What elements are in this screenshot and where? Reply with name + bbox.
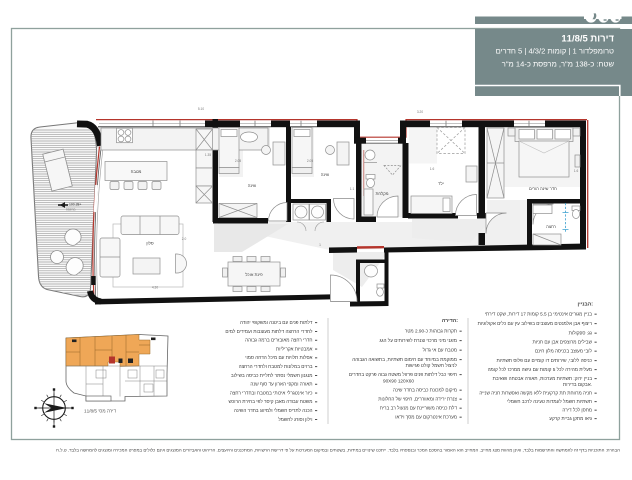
svg-text:מקלחת: מקלחת [375, 191, 388, 196]
svg-text:אמבטיות אקריליות: אמבטיות אקריליות [276, 346, 313, 351]
svg-text:לחדרי הרחצה דלתות מעוצבות ועמי: לחדרי הרחצה דלתות מעוצבות ועמידים למים [225, 329, 313, 334]
svg-text:בניין מגורים אינטימי בן 5.5 קו: בניין מגורים אינטימי בן 5.5 קומות 17 דיר… [485, 312, 592, 317]
svg-text:הכנה לתריס חשמלי ולמיזוג בחדר: הכנה לתריס חשמלי ולמיזוג בחדר השינה [234, 408, 313, 413]
svg-text:2.0: 2.0 [182, 237, 187, 241]
svg-text:מטבח עם אי גדול: מטבח עם אי גדול [423, 348, 457, 353]
svg-text:טרומפלדור 1 | קומות 4/3/2 | 5: טרומפלדור 1 | קומות 4/3/2 | 5 חדרים [496, 47, 614, 56]
svg-text:תאורה ומקפי הארון עד סוף שנה: תאורה ומקפי הארון עד סוף שנה [250, 382, 312, 387]
svg-text:מזגני מיני מרכזי וצנרת לשירותי: מזגני מיני מרכזי וצנרת לשירותים על הגג [380, 338, 457, 343]
svg-text:4.30: 4.30 [152, 286, 158, 290]
svg-text:1.6: 1.6 [574, 169, 579, 173]
svg-text:גג: ספקולות: גג: ספקולות [569, 331, 592, 336]
svg-text:ילד: ילד [438, 181, 444, 186]
svg-text:בניין ירוק: תשתיות מערכות, תאו: בניין ירוק: תשתיות מערכות, תאורה אבטחה ו… [493, 376, 593, 381]
svg-text:רחצה: רחצה [546, 224, 556, 229]
svg-text:1.35: 1.35 [205, 153, 211, 157]
svg-text:מחסן לכל דירה: מחסן לכל דירה [562, 408, 592, 413]
svg-text:לובי מעוצב בכניסה מלון חינם: לובי מעוצב בכניסה מלון חינם [535, 349, 593, 354]
svg-text:5.10: 5.10 [198, 107, 204, 111]
svg-text:מטבח: מטבח [131, 169, 142, 174]
svg-text:הבהרה: התוכניות בדף זה להמחשה: הבהרה: התוכניות בדף זה להמחשה והתרשמות ב… [56, 448, 620, 453]
svg-text:1: 1 [319, 243, 321, 247]
svg-text:שינה: שינה [321, 172, 329, 177]
svg-text:אבקום בדירות.: אבקום בדירות. [563, 382, 592, 387]
svg-text:דלת כניסה משוריינת עם מנעול רב: דלת כניסה משוריינת עם מנעול רב בריח [380, 406, 458, 411]
svg-text:חיפוי כבל דלתות פנים פרזול משט: חיפוי כבל דלתות פנים פרזול משטח גבוה פרק… [349, 372, 457, 377]
svg-text:כיור אינטגרלי איכותי במטבח ובח: כיור אינטגרלי איכותי במטבח ובחדרי רחצה [230, 390, 313, 395]
svg-text:חדרי רחצה מאובזרים ברמה גבוהה: חדרי רחצה מאובזרים ברמה גבוהה [245, 338, 312, 343]
svg-text:פינת אוכל: פינת אוכל [245, 272, 263, 277]
svg-text:כניסה ללובי, שירותים דו קומיים: כניסה ללובי, שירותים דו קומיים עם פלוס ת… [497, 358, 593, 363]
svg-text:תשתיות חשמל לעמדות טעינה לרכב: תשתיות חשמל לעמדות טעינה לרכב חשמלי [507, 399, 592, 404]
svg-text:חניה מרווחת תת קרקעית ללא מקשה: חניה מרווחת תת קרקעית ללא מקשה ואפשרות ח… [479, 391, 592, 396]
svg-text:משטח עבודה מאבן קיסר לפי בחירת: משטח עבודה מאבן קיסר לפי בחירת הרוכש [228, 399, 312, 404]
svg-text:ריצוף אבן אלמנטים מעוצבים בשיל: ריצוף אבן אלמנטים מעוצבים בשילוב עץ עם כ… [478, 321, 593, 326]
svg-text:אסלות תלויות עם מיכל הדחה סמוי: אסלות תלויות עם מיכל הדחה סמוי [245, 355, 312, 360]
svg-text:צנרת ירידה ומאווררים, חיפוי של: צנרת ירידה ומאווררים, חיפוי של החלונות [378, 397, 457, 402]
svg-text:דירה מס' 11/8/5: דירה מס' 11/8/5 [84, 409, 116, 414]
svg-text:הדירה:: הדירה: [442, 318, 458, 324]
svg-text:סלון: סלון [146, 241, 153, 246]
svg-text:מערכת אינטרקום עם מסך וידאו: מערכת אינטרקום עם מסך וידאו [395, 415, 457, 420]
svg-text:שינה: שינה [248, 183, 256, 188]
svg-text:ממוקמת במיוחד עם חימום תשתיות,: ממוקמת במיוחד עם חימום תשתיות, בתשואה הג… [352, 357, 457, 362]
svg-text:מיקום למכונת כביסה בחדר שינה: מיקום למכונת כביסה בחדר שינה [393, 388, 457, 393]
svg-text:מנגנון חשמלי נסתר לתליית כביסה: מנגנון חשמלי נסתר לתליית כביסה בשילוב [231, 373, 313, 378]
svg-text:תקרות גבוהות כ-2.90 מטר: תקרות גבוהות כ-2.90 מטר [405, 329, 457, 334]
svg-text:ברזים במלונות למטבח ולחדרי הרח: ברזים במלונות למטבח ולחדרי הרחצה [239, 364, 313, 369]
svg-text:1.6: 1.6 [430, 167, 435, 171]
svg-text:2.05: 2.05 [307, 159, 313, 163]
svg-text:דירות 11/8/5: דירות 11/8/5 [561, 34, 614, 45]
svg-text:חדר שינה הורים: חדר שינה הורים [529, 186, 557, 191]
svg-text:2.05: 2.05 [235, 159, 241, 163]
svg-text:הבניין:: הבניין: [578, 302, 594, 308]
svg-text:מרפסת: מרפסת [66, 208, 75, 212]
svg-text:גיאו מתקן גביית קרקע: גיאו מתקן גביית קרקע [549, 416, 592, 421]
svg-text:לניצול חשמל קולט פגישות: לניצול חשמל קולט פגישות [406, 363, 458, 368]
svg-text:דלתות פנים עם ביטנה ומשקופי יה: דלתות פנים עם ביטנה ומשקופי יהודה [240, 320, 313, 325]
svg-text:מעלית מהירה לכל 5 קומות עם גיש: מעלית מהירה לכל 5 קומות עם גישה ממרכז לכ… [488, 367, 592, 372]
svg-text:90X90 120X60: 90X90 120X60 [383, 379, 414, 384]
svg-text:שבילים מרוצפים אבן עם חניות: שבילים מרוצפים אבן עם חניות [532, 340, 592, 345]
svg-text:וילון וסורג לחשמל: וילון וסורג לחשמל [278, 417, 312, 422]
svg-text:100.38+: 100.38+ [69, 203, 81, 207]
svg-text:שטח: כ-138 מ"ר, מרפסת כ-14 מ"ר: שטח: כ-138 מ"ר, מרפסת כ-14 מ"ר [502, 60, 615, 69]
svg-text:3.20: 3.20 [417, 110, 423, 114]
svg-text:1.1: 1.1 [350, 187, 355, 191]
